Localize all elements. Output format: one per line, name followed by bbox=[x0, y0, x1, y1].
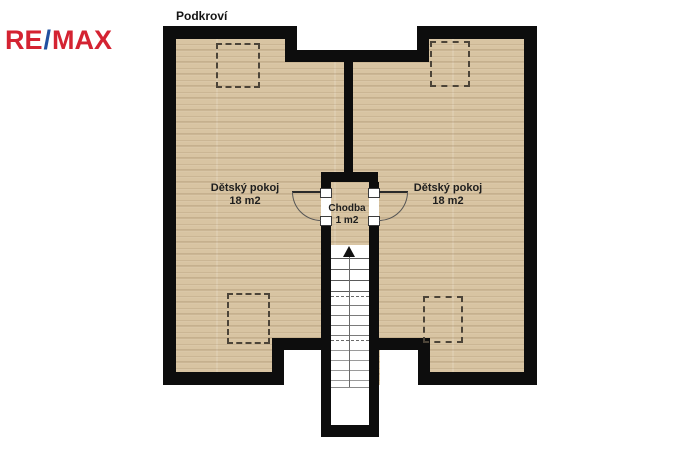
bottom-left-cutout bbox=[284, 350, 321, 385]
room-label-left: Dětský pokoj 18 m2 bbox=[170, 182, 320, 208]
door-jamb bbox=[320, 188, 332, 198]
stair-step-line bbox=[331, 387, 369, 388]
wall-segment bbox=[344, 50, 353, 182]
stair-step-line bbox=[331, 350, 369, 351]
room-label-right: Dětský pokoj 18 m2 bbox=[373, 182, 523, 208]
wall-segment bbox=[163, 372, 284, 385]
skylight-outline bbox=[227, 293, 270, 344]
stair-step-line bbox=[331, 258, 369, 259]
skylight-outline bbox=[430, 41, 470, 87]
stair-step-line bbox=[331, 296, 369, 297]
room-name: Dětský pokoj bbox=[170, 182, 320, 195]
skylight-outline bbox=[216, 43, 260, 88]
logo-max-text: MAX bbox=[52, 25, 112, 55]
stair-step-line bbox=[331, 315, 369, 316]
room-area: 1 m2 bbox=[307, 215, 387, 227]
staircase bbox=[331, 245, 369, 425]
wall-segment bbox=[418, 372, 537, 385]
wall-segment bbox=[524, 26, 537, 385]
stair-step-line bbox=[331, 380, 369, 381]
room-label-hallway: Chodba 1 m2 bbox=[307, 203, 387, 227]
top-notch-cutout bbox=[297, 26, 417, 50]
wall-segment bbox=[417, 26, 537, 39]
stair-step-line bbox=[331, 360, 369, 361]
logo-re-text: RE bbox=[5, 25, 43, 55]
wall-segment bbox=[285, 50, 429, 62]
wall-segment bbox=[321, 172, 378, 182]
wall-segment bbox=[163, 26, 297, 39]
floor-plan-page: RE/MAX Podkroví Dětský bbox=[0, 0, 684, 456]
skylight-outline bbox=[423, 296, 463, 343]
stair-step-line bbox=[331, 280, 369, 281]
stair-step-line bbox=[331, 340, 369, 341]
stair-center-line bbox=[349, 257, 350, 387]
bottom-right-cutout bbox=[380, 350, 418, 385]
page-title: Podkroví bbox=[176, 9, 227, 23]
stair-step-line bbox=[331, 269, 369, 270]
room-area: 18 m2 bbox=[373, 195, 523, 208]
stair-step-line bbox=[331, 305, 369, 306]
stair-step-line bbox=[331, 291, 369, 292]
stair-step-line bbox=[331, 325, 369, 326]
stairs-up-arrow-icon bbox=[343, 246, 355, 257]
remax-logo: RE/MAX bbox=[5, 27, 112, 54]
wall-segment bbox=[321, 425, 379, 437]
room-name: Dětský pokoj bbox=[373, 182, 523, 195]
stair-steps bbox=[331, 245, 369, 425]
logo-slash-icon: / bbox=[43, 25, 53, 55]
room-area: 18 m2 bbox=[170, 195, 320, 208]
stair-step-line bbox=[331, 370, 369, 371]
stair-step-line bbox=[331, 335, 369, 336]
room-name: Chodba bbox=[307, 203, 387, 215]
